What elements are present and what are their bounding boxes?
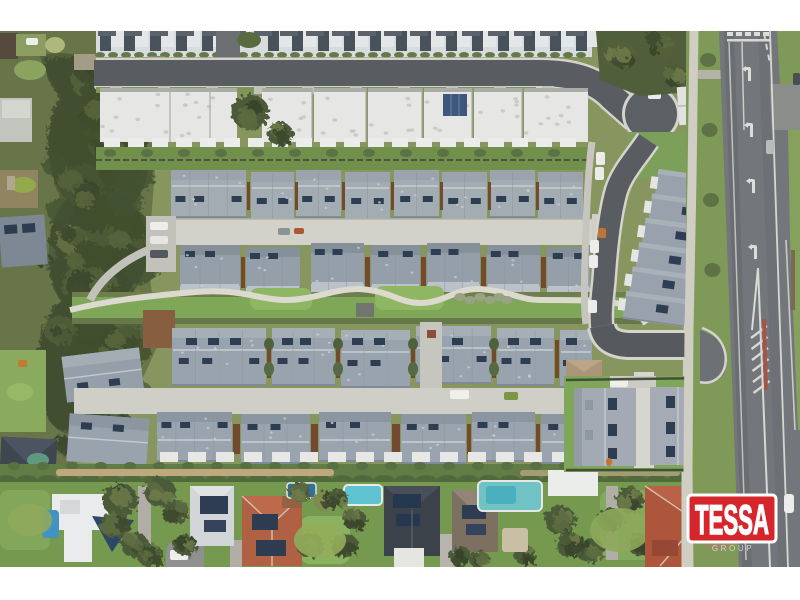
svg-text:TESSA: TESSA	[695, 496, 769, 543]
svg-text:GROUP: GROUP	[712, 544, 754, 553]
